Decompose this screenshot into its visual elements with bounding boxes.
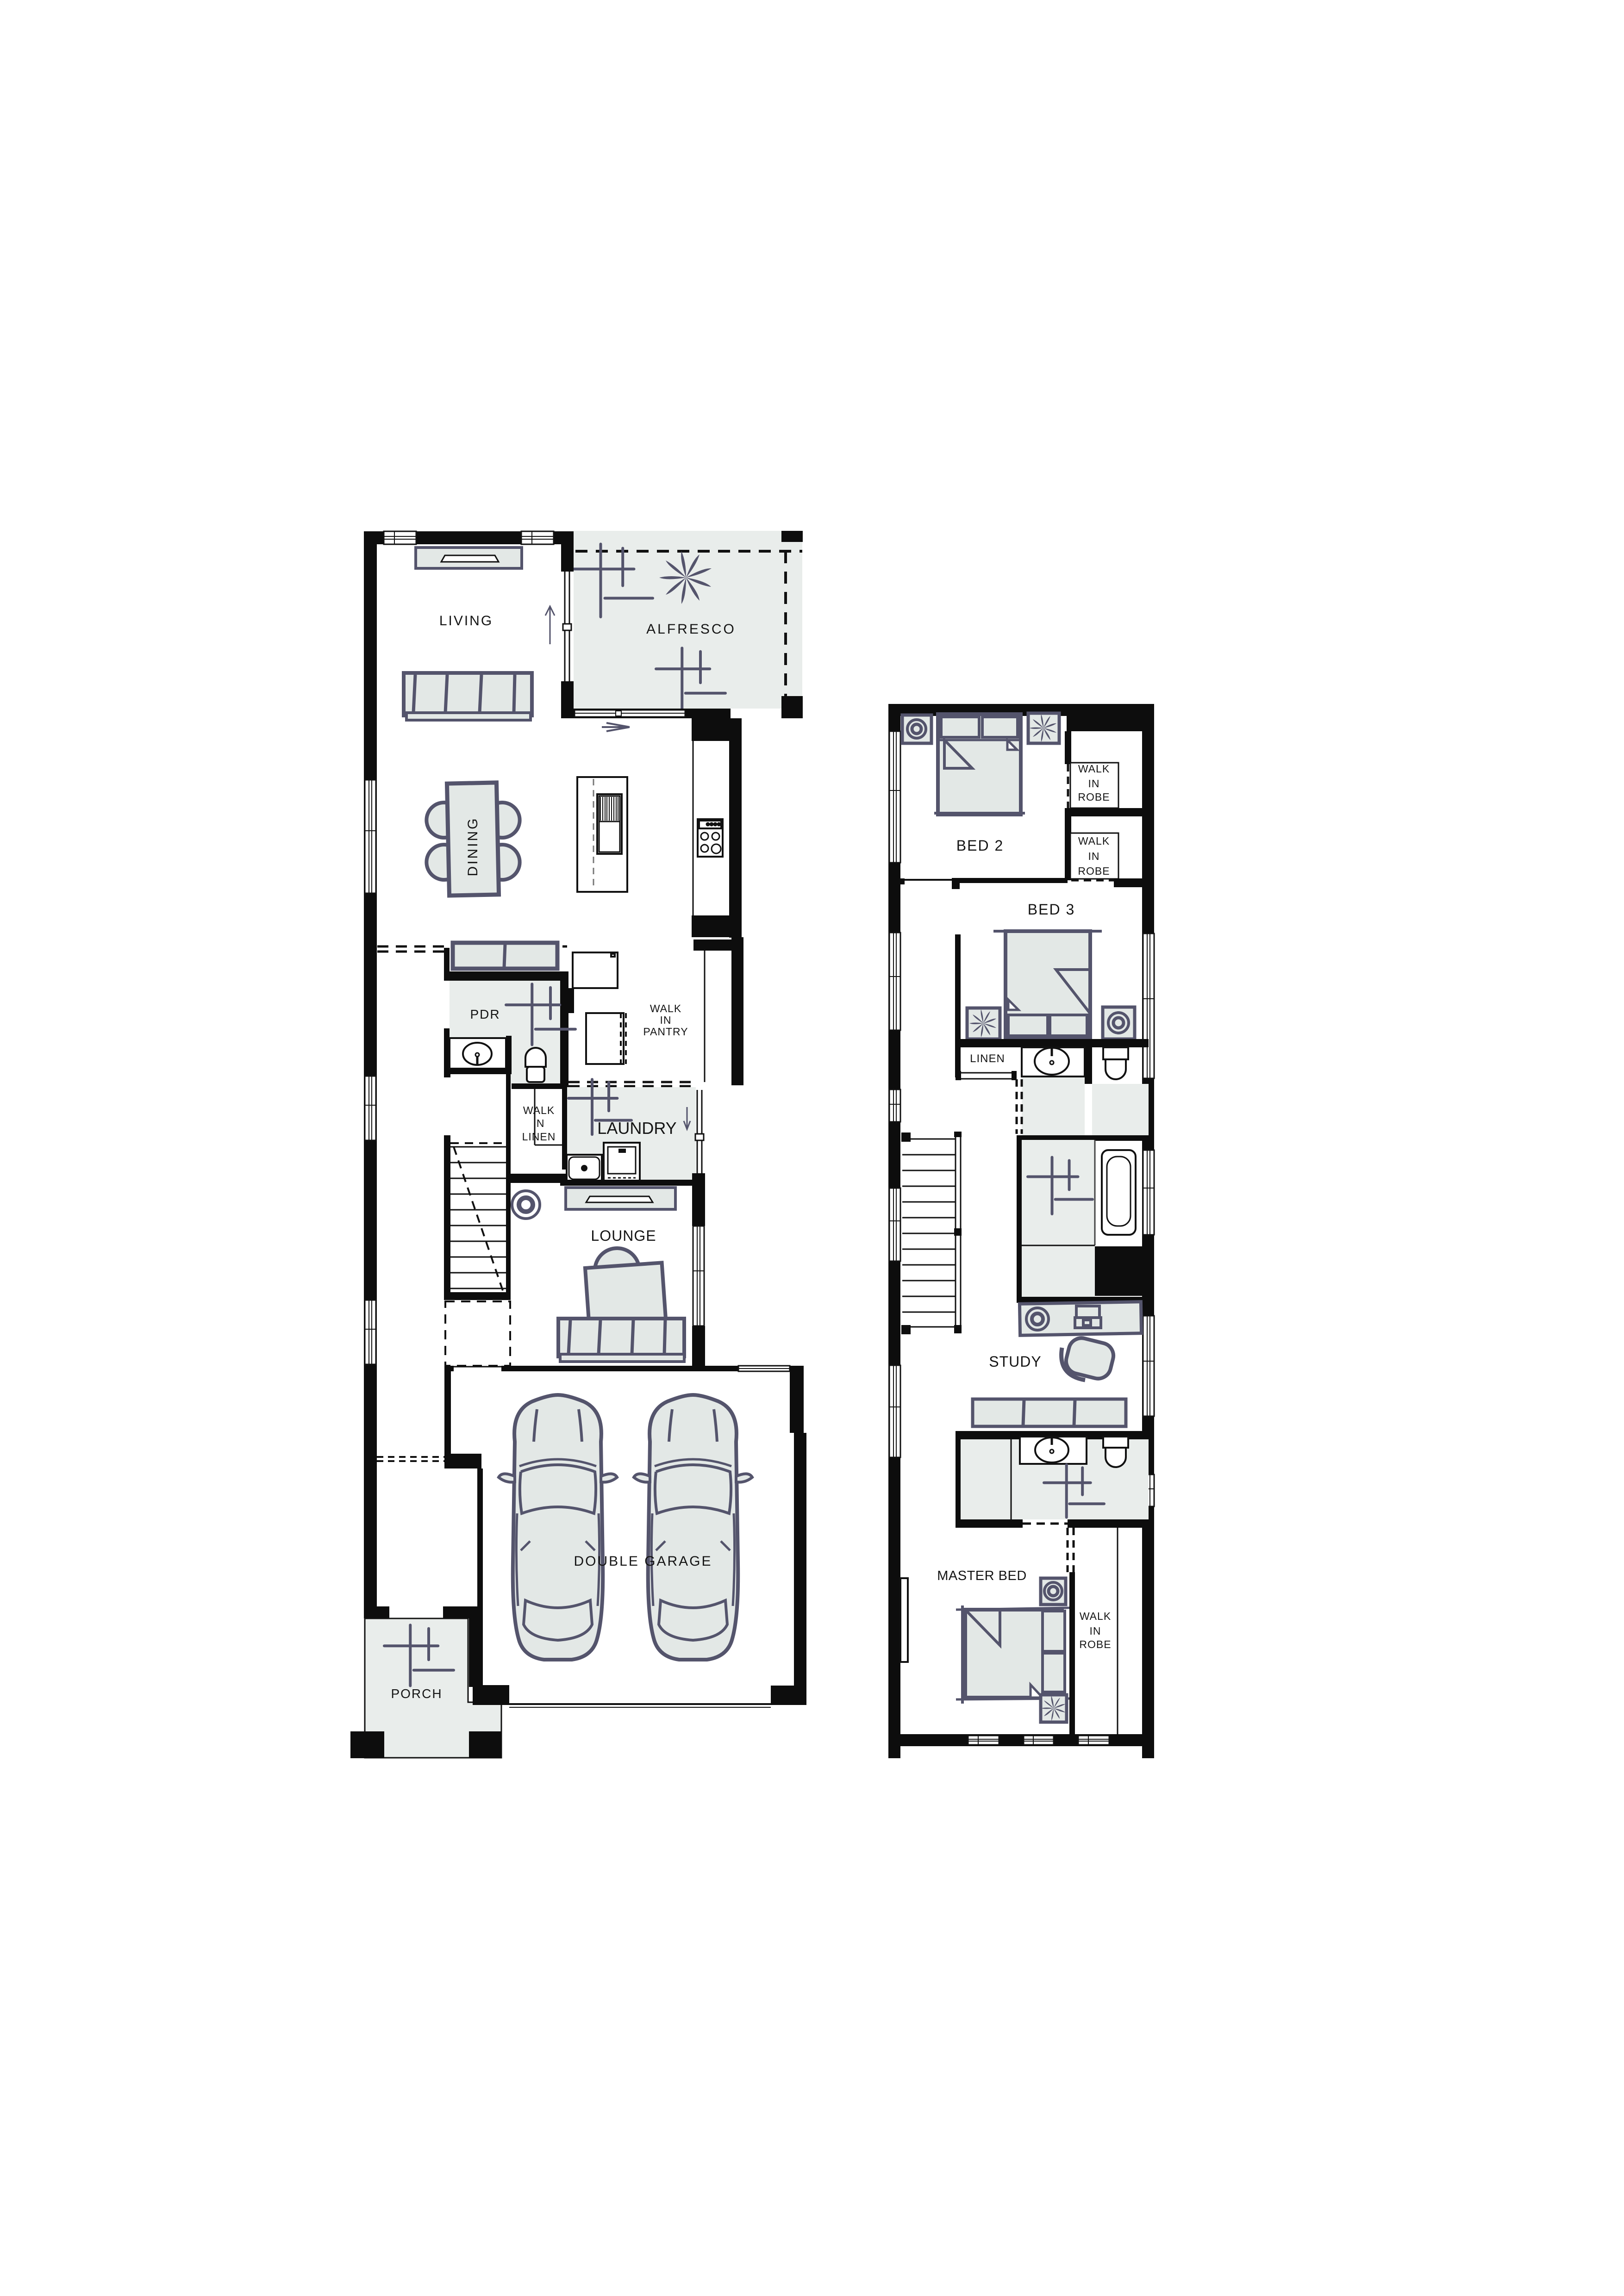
svg-text:BED 3: BED 3: [1028, 901, 1075, 918]
svg-text:LAUNDRY: LAUNDRY: [597, 1119, 676, 1138]
svg-text:MASTER BED: MASTER BED: [937, 1568, 1027, 1583]
svg-text:WALK: WALK: [1078, 835, 1110, 847]
svg-text:ROBE: ROBE: [1078, 791, 1110, 803]
svg-text:WALK: WALK: [1078, 763, 1110, 775]
svg-text:IN: IN: [1088, 850, 1100, 862]
svg-text:LOUNGE: LOUNGE: [591, 1227, 656, 1244]
svg-text:WALK: WALK: [1080, 1610, 1111, 1622]
svg-text:ALFRESCO: ALFRESCO: [646, 622, 736, 637]
svg-text:WALK: WALK: [523, 1104, 555, 1116]
svg-text:STUDY: STUDY: [989, 1353, 1041, 1370]
svg-text:PORCH: PORCH: [391, 1686, 442, 1701]
svg-text:LINEN: LINEN: [522, 1131, 556, 1143]
svg-text:IN: IN: [1090, 1625, 1101, 1637]
svg-text:IN: IN: [660, 1014, 672, 1026]
svg-text:PDR: PDR: [470, 1007, 500, 1021]
svg-text:LINEN: LINEN: [970, 1052, 1005, 1065]
svg-text:ROBE: ROBE: [1078, 865, 1110, 877]
svg-text:DINING: DINING: [465, 817, 481, 877]
svg-text:WALK: WALK: [650, 1002, 681, 1014]
svg-text:DOUBLE GARAGE: DOUBLE GARAGE: [574, 1554, 712, 1569]
svg-text:BED 2: BED 2: [956, 837, 1004, 854]
svg-text:IN: IN: [1088, 778, 1100, 790]
svg-text:ROBE: ROBE: [1079, 1638, 1111, 1650]
svg-text:LIVING: LIVING: [439, 613, 493, 628]
svg-text:PANTRY: PANTRY: [643, 1026, 688, 1038]
svg-text:IN: IN: [533, 1117, 545, 1129]
